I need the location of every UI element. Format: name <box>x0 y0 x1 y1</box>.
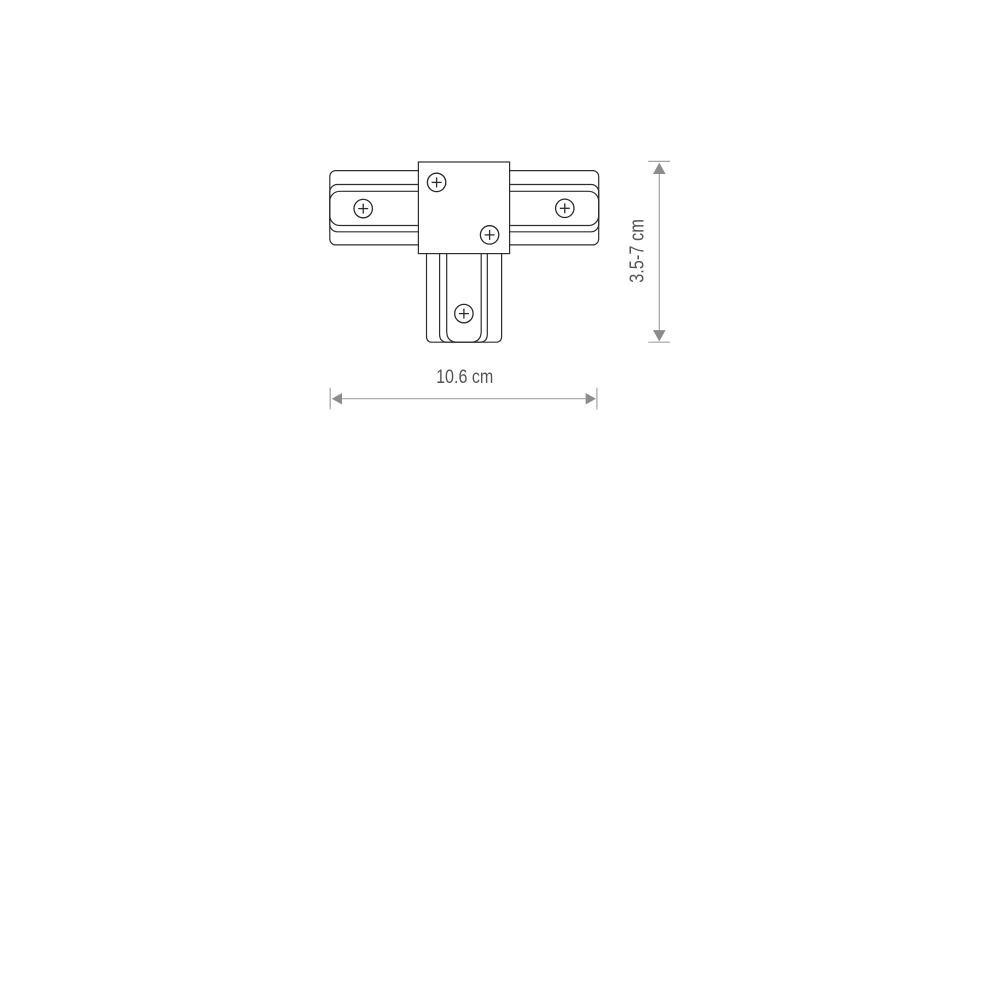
svg-text:10.6 cm: 10.6 cm <box>436 365 493 387</box>
svg-text:3.5-7 cm: 3.5-7 cm <box>625 219 648 283</box>
